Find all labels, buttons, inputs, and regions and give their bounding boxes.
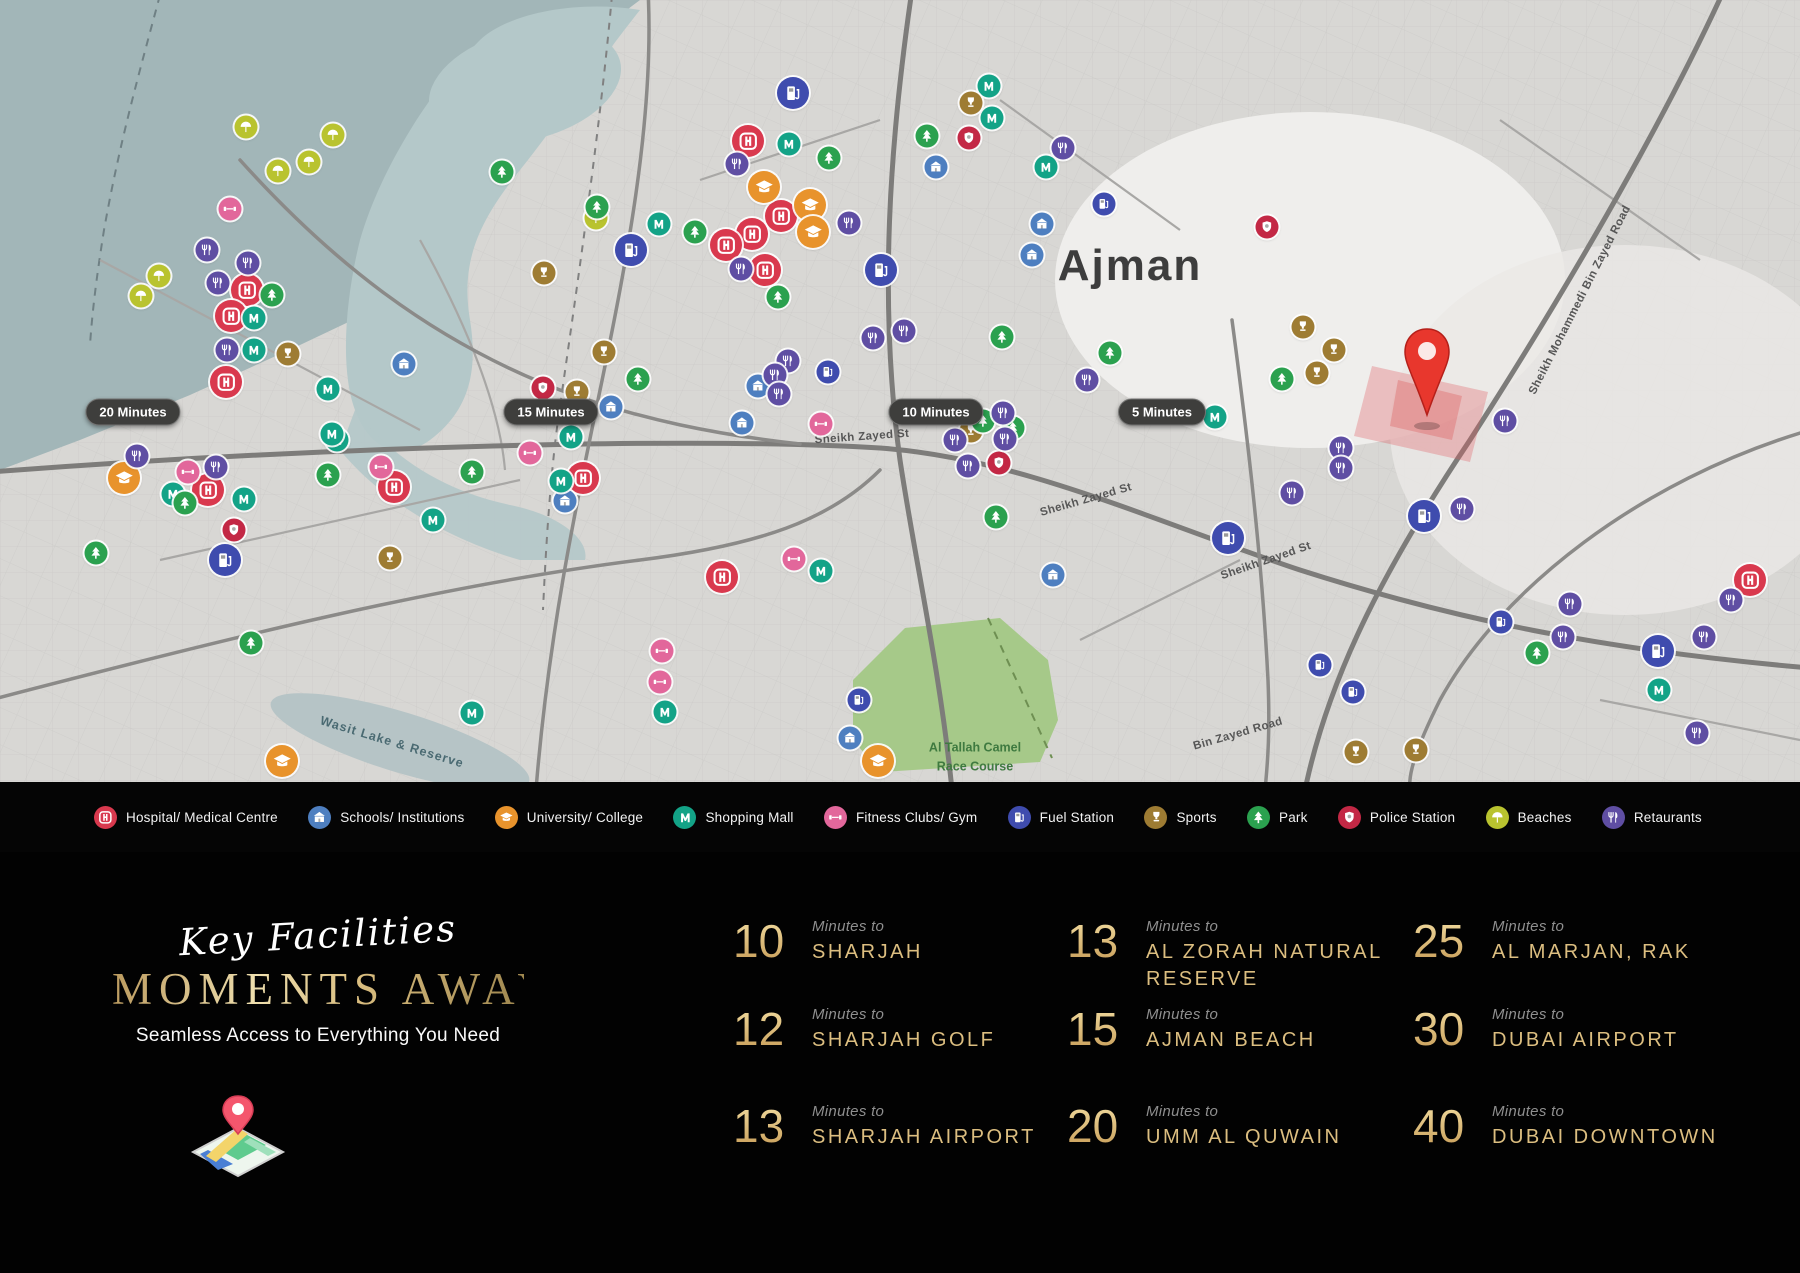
destination-text: Minutes toSHARJAH GOLF — [812, 1006, 995, 1054]
destination-name: DUBAI DOWNTOWN — [1492, 1124, 1718, 1151]
fuel-marker-icon — [615, 234, 647, 266]
park-marker-icon — [85, 542, 108, 565]
mall-marker-icon — [233, 488, 256, 511]
drive-time-badge: 5 Minutes — [1118, 399, 1206, 426]
restaurant-marker-icon — [944, 429, 967, 452]
fuel-marker-icon — [1342, 681, 1365, 704]
mall-marker-icon — [243, 307, 266, 330]
destination-name: SHARJAH GOLF — [812, 1027, 995, 1054]
sports-marker-icon — [1292, 316, 1315, 339]
mall-marker-icon — [1648, 679, 1671, 702]
park-marker-icon — [461, 461, 484, 484]
destination-name: SHARJAH — [812, 939, 923, 966]
legend-item-beach: Beaches — [1486, 806, 1572, 829]
destination-prefix: Minutes to — [812, 918, 923, 935]
section-script-heading: Key Facilities — [111, 903, 525, 968]
police-marker-icon — [1256, 216, 1279, 239]
restaurant-marker-icon — [1052, 137, 1075, 160]
fuel-marker-icon — [209, 544, 241, 576]
legend-label: Beaches — [1518, 810, 1572, 825]
destination-text: Minutes toSHARJAH — [812, 918, 923, 966]
fitness-marker-icon — [177, 461, 200, 484]
hospital-marker-icon — [749, 254, 781, 286]
school-icon — [308, 806, 331, 829]
legend-label: Schools/ Institutions — [340, 810, 464, 825]
fuel-marker-icon — [1212, 522, 1244, 554]
fitness-marker-icon — [649, 671, 672, 694]
fuel-icon — [1008, 806, 1031, 829]
destination-item: 30Minutes toDUBAI AIRPORT — [1413, 996, 1743, 1093]
park-marker-icon — [991, 326, 1014, 349]
hospital-marker-icon — [765, 200, 797, 232]
restaurant-marker-icon — [1330, 457, 1353, 480]
mall-marker-icon — [981, 107, 1004, 130]
park-marker-icon — [317, 464, 340, 487]
legend-item-mall: Shopping Mall — [673, 806, 793, 829]
park-marker-icon — [261, 284, 284, 307]
university-marker-icon — [266, 745, 298, 777]
location-pin-icon — [1403, 327, 1451, 424]
legend-item-university: University/ College — [495, 806, 643, 829]
university-marker-icon — [748, 171, 780, 203]
police-marker-icon — [988, 452, 1011, 475]
school-marker-icon — [600, 396, 623, 419]
legend-item-fuel: Fuel Station — [1008, 806, 1114, 829]
restaurant-marker-icon — [1076, 369, 1099, 392]
destination-text: Minutes toAL MARJAN, RAK — [1492, 918, 1691, 966]
legend-label: Sports — [1176, 810, 1216, 825]
restaurant-marker-icon — [768, 383, 791, 406]
restaurant-marker-icon — [1693, 626, 1716, 649]
fuel-marker-icon — [1093, 193, 1116, 216]
fitness-marker-icon — [219, 198, 242, 221]
park-marker-icon — [174, 492, 197, 515]
park-marker-icon — [491, 161, 514, 184]
mall-marker-icon — [243, 339, 266, 362]
destination-item: 13Minutes toAL ZORAH NATURAL RESERVE — [1067, 908, 1413, 996]
destinations-grid: 10Minutes toSHARJAH12Minutes toSHARJAH G… — [733, 908, 1743, 1173]
beach-icon — [1486, 806, 1509, 829]
beach-marker-icon — [130, 285, 153, 308]
sports-icon — [1144, 806, 1167, 829]
school-marker-icon — [1042, 564, 1065, 587]
restaurant-marker-icon — [216, 339, 239, 362]
fuel-marker-icon — [1642, 635, 1674, 667]
destination-name: UMM AL QUWAIN — [1146, 1124, 1341, 1151]
mall-marker-icon — [648, 213, 671, 236]
destination-item: 12Minutes toSHARJAH GOLF — [733, 996, 1067, 1093]
park-marker-icon — [240, 632, 263, 655]
legend-item-police: Police Station — [1338, 806, 1455, 829]
fitness-icon — [824, 806, 847, 829]
map-basemap — [0, 0, 1800, 782]
police-marker-icon — [223, 519, 246, 542]
mall-marker-icon — [978, 75, 1001, 98]
destination-item: 25Minutes toAL MARJAN, RAK — [1413, 908, 1743, 996]
park-marker-icon — [1271, 368, 1294, 391]
section-heading-block: Key Facilities MOMENTS AWAY Seamless Acc… — [112, 914, 524, 1047]
restaurant-marker-icon — [237, 252, 260, 275]
restaurant-marker-icon — [893, 320, 916, 343]
destination-minutes: 20 — [1067, 1103, 1131, 1149]
legend-item-park: Park — [1247, 806, 1308, 829]
park-marker-icon — [985, 506, 1008, 529]
mall-marker-icon — [317, 378, 340, 401]
university-marker-icon — [797, 216, 829, 248]
sports-marker-icon — [379, 547, 402, 570]
restaurant-marker-icon — [1686, 722, 1709, 745]
fitness-marker-icon — [370, 456, 393, 479]
sports-marker-icon — [1405, 739, 1428, 762]
park-marker-icon — [818, 147, 841, 170]
legend-label: Police Station — [1370, 810, 1455, 825]
mall-marker-icon — [550, 470, 573, 493]
legend-label: University/ College — [527, 810, 643, 825]
legend-label: Shopping Mall — [705, 810, 793, 825]
destination-text: Minutes toDUBAI AIRPORT — [1492, 1006, 1679, 1054]
destination-text: Minutes toSHARJAH AIRPORT — [812, 1103, 1036, 1151]
destination-item: 13Minutes toSHARJAH AIRPORT — [733, 1093, 1067, 1173]
fitness-marker-icon — [810, 413, 833, 436]
map-3d-icon — [188, 1090, 288, 1182]
sports-marker-icon — [533, 262, 556, 285]
section-main-heading: MOMENTS AWAY — [112, 963, 524, 1015]
destination-prefix: Minutes to — [812, 1103, 1036, 1120]
restaurant-marker-icon — [1720, 589, 1743, 612]
park-marker-icon — [1526, 642, 1549, 665]
hospital-marker-icon — [706, 561, 738, 593]
destination-minutes: 25 — [1413, 918, 1477, 964]
legend-label: Park — [1279, 810, 1308, 825]
school-marker-icon — [1031, 213, 1054, 236]
school-marker-icon — [393, 353, 416, 376]
drive-time-badge: 15 Minutes — [503, 399, 598, 426]
restaurant-marker-icon — [1281, 482, 1304, 505]
legend-label: Hospital/ Medical Centre — [126, 810, 278, 825]
restaurant-marker-icon — [1559, 593, 1582, 616]
destination-item: 15Minutes toAJMAN BEACH — [1067, 996, 1413, 1093]
sports-marker-icon — [593, 341, 616, 364]
university-marker-icon — [862, 745, 894, 777]
restaurant-marker-icon — [207, 272, 230, 295]
park-marker-icon — [916, 125, 939, 148]
sports-marker-icon — [960, 92, 983, 115]
destination-prefix: Minutes to — [812, 1006, 995, 1023]
park-marker-icon — [627, 368, 650, 391]
destination-name: SHARJAH AIRPORT — [812, 1124, 1036, 1151]
destination-item: 20Minutes toUMM AL QUWAIN — [1067, 1093, 1413, 1173]
mall-marker-icon — [560, 426, 583, 449]
police-icon — [1338, 806, 1361, 829]
mall-marker-icon — [1204, 406, 1227, 429]
map-legend: Hospital/ Medical CentreSchools/ Institu… — [0, 782, 1800, 852]
destination-prefix: Minutes to — [1492, 1006, 1679, 1023]
destination-minutes: 13 — [1067, 918, 1131, 964]
destination-item: 10Minutes toSHARJAH — [733, 908, 1067, 996]
destination-text: Minutes toAJMAN BEACH — [1146, 1006, 1316, 1054]
fuel-marker-icon — [817, 361, 840, 384]
park-marker-icon — [767, 286, 790, 309]
restaurant-marker-icon — [730, 258, 753, 281]
mall-marker-icon — [461, 702, 484, 725]
key-facilities-section: Key Facilities MOMENTS AWAY Seamless Acc… — [0, 852, 1800, 1273]
destination-minutes: 15 — [1067, 1006, 1131, 1052]
school-marker-icon — [925, 156, 948, 179]
legend-item-fitness: Fitness Clubs/ Gym — [824, 806, 977, 829]
legend-item-sports: Sports — [1144, 806, 1216, 829]
school-marker-icon — [554, 490, 577, 513]
hospital-marker-icon — [210, 366, 242, 398]
fuel-marker-icon — [848, 689, 871, 712]
destination-name: AL ZORAH NATURAL RESERVE — [1146, 939, 1392, 993]
drive-time-badge: 10 Minutes — [888, 399, 983, 426]
park-marker-icon — [1099, 342, 1122, 365]
sports-marker-icon — [1323, 339, 1346, 362]
beach-marker-icon — [322, 124, 345, 147]
destination-text: Minutes toUMM AL QUWAIN — [1146, 1103, 1341, 1151]
fitness-marker-icon — [651, 640, 674, 663]
city-map: AjmanSheikh Zayed StSheikh Zayed StSheik… — [0, 0, 1800, 782]
destination-prefix: Minutes to — [1492, 1103, 1718, 1120]
destination-prefix: Minutes to — [1146, 1103, 1341, 1120]
university-icon — [495, 806, 518, 829]
fuel-marker-icon — [777, 77, 809, 109]
hospital-icon — [94, 806, 117, 829]
mall-marker-icon — [810, 560, 833, 583]
destination-minutes: 13 — [733, 1103, 797, 1149]
restaurant-marker-icon — [994, 428, 1017, 451]
school-marker-icon — [1021, 244, 1044, 267]
hospital-marker-icon — [710, 229, 742, 261]
school-marker-icon — [731, 412, 754, 435]
legend-item-school: Schools/ Institutions — [308, 806, 464, 829]
police-marker-icon — [532, 377, 555, 400]
restaurant-marker-icon — [992, 402, 1015, 425]
fuel-marker-icon — [1408, 500, 1440, 532]
police-marker-icon — [958, 127, 981, 150]
fuel-marker-icon — [865, 254, 897, 286]
restaurant-marker-icon — [196, 239, 219, 262]
destination-prefix: Minutes to — [1492, 918, 1691, 935]
destination-minutes: 12 — [733, 1006, 797, 1052]
fitness-marker-icon — [783, 548, 806, 571]
destination-minutes: 40 — [1413, 1103, 1477, 1149]
destination-prefix: Minutes to — [1146, 918, 1392, 935]
school-marker-icon — [839, 727, 862, 750]
beach-marker-icon — [267, 160, 290, 183]
restaurant-marker-icon — [1451, 498, 1474, 521]
restaurant-marker-icon — [838, 212, 861, 235]
drive-time-badge: 20 Minutes — [85, 399, 180, 426]
beach-marker-icon — [148, 265, 171, 288]
legend-label: Fuel Station — [1040, 810, 1114, 825]
sports-marker-icon — [277, 343, 300, 366]
restaurant-marker-icon — [1494, 410, 1517, 433]
fuel-marker-icon — [1490, 611, 1513, 634]
legend-label: Retaurants — [1634, 810, 1702, 825]
destination-item: 40Minutes toDUBAI DOWNTOWN — [1413, 1093, 1743, 1173]
restaurant-marker-icon — [205, 456, 228, 479]
destination-prefix: Minutes to — [1146, 1006, 1316, 1023]
destination-text: Minutes toAL ZORAH NATURAL RESERVE — [1146, 918, 1392, 993]
park-icon — [1247, 806, 1270, 829]
destination-minutes: 10 — [733, 918, 797, 964]
destination-name: AL MARJAN, RAK — [1492, 939, 1691, 966]
mall-marker-icon — [422, 509, 445, 532]
sports-marker-icon — [1345, 741, 1368, 764]
mall-marker-icon — [654, 701, 677, 724]
destination-name: DUBAI AIRPORT — [1492, 1027, 1679, 1054]
restaurant-marker-icon — [1552, 626, 1575, 649]
beach-marker-icon — [298, 151, 321, 174]
mall-icon — [673, 806, 696, 829]
restaurant-marker-icon — [862, 327, 885, 350]
brochure-page: AjmanSheikh Zayed StSheikh Zayed StSheik… — [0, 0, 1800, 1273]
restaurant-marker-icon — [957, 455, 980, 478]
mall-marker-icon — [778, 133, 801, 156]
restaurant-marker-icon — [126, 445, 149, 468]
section-subheading: Seamless Access to Everything You Need — [112, 1025, 524, 1047]
sports-marker-icon — [1306, 362, 1329, 385]
fitness-marker-icon — [519, 442, 542, 465]
restaurant-icon — [1602, 806, 1625, 829]
legend-label: Fitness Clubs/ Gym — [856, 810, 977, 825]
legend-item-hospital: Hospital/ Medical Centre — [94, 806, 278, 829]
beach-marker-icon — [235, 116, 258, 139]
fuel-marker-icon — [1309, 654, 1332, 677]
mall-marker-icon — [321, 423, 344, 446]
restaurant-marker-icon — [726, 153, 749, 176]
mall-marker-icon — [1035, 156, 1058, 179]
destination-minutes: 30 — [1413, 1006, 1477, 1052]
park-marker-icon — [684, 221, 707, 244]
destination-name: AJMAN BEACH — [1146, 1027, 1316, 1054]
park-marker-icon — [586, 196, 609, 219]
legend-item-restaurant: Retaurants — [1602, 806, 1702, 829]
destination-text: Minutes toDUBAI DOWNTOWN — [1492, 1103, 1718, 1151]
